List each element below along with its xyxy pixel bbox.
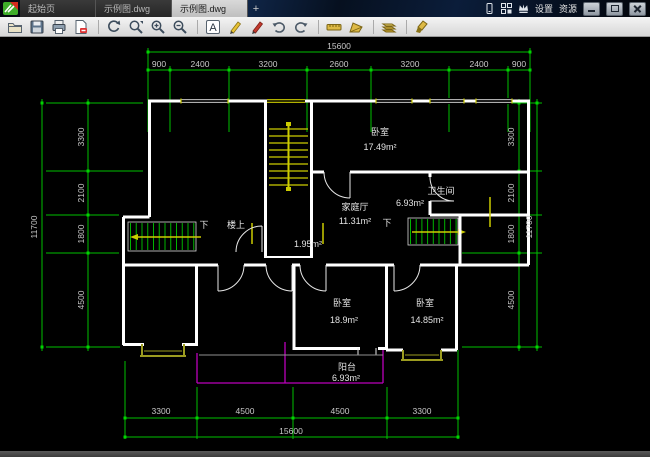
tab-drawing-1[interactable]: 示例图.dwg xyxy=(96,0,172,17)
zoom-extents-icon xyxy=(128,19,144,35)
text-annotate-button[interactable]: A xyxy=(203,18,223,36)
zoom-out-button[interactable] xyxy=(170,18,190,36)
bay-windows xyxy=(140,344,443,360)
text-tool-icon: A xyxy=(205,19,221,35)
bedroom-left-area: 18.9m² xyxy=(330,315,358,325)
tab-label: 起始页 xyxy=(28,2,55,15)
new-tab-button[interactable]: + xyxy=(248,0,264,17)
maximize-button[interactable] xyxy=(606,2,623,16)
zoom-out-icon xyxy=(172,19,188,35)
toolbar-separator xyxy=(98,20,99,34)
room-labels: 卧室 17.49m² 卫生间 6.93m² 家庭厅 11.31m² 1.95m²… xyxy=(199,126,454,383)
resources-menu[interactable]: 资源 xyxy=(559,2,577,15)
dimension-markers xyxy=(41,51,539,439)
svg-text:900: 900 xyxy=(512,59,526,69)
minimize-button[interactable] xyxy=(583,2,600,16)
open-button[interactable] xyxy=(5,18,25,36)
bedroom-right-area: 14.85m² xyxy=(410,315,443,325)
zoom-extents-button[interactable] xyxy=(126,18,146,36)
dim-right-total: 11700 xyxy=(524,215,534,238)
save-floppy-icon xyxy=(29,19,45,35)
svg-text:2100: 2100 xyxy=(76,183,86,202)
svg-text:4500: 4500 xyxy=(76,290,86,309)
tab-drawing-2-active[interactable]: 示例图.dwg xyxy=(172,0,248,17)
svg-text:3300: 3300 xyxy=(76,127,86,146)
redo-button[interactable] xyxy=(291,18,311,36)
ruler-icon xyxy=(326,19,342,35)
cleanup-button[interactable] xyxy=(412,18,432,36)
dim-left-total: 11700 xyxy=(29,215,39,238)
redo-icon xyxy=(293,19,309,35)
zoom-in-icon xyxy=(150,19,166,35)
svg-text:3200: 3200 xyxy=(259,59,278,69)
tab-start-page[interactable]: 起始页 xyxy=(20,0,96,17)
rotate-icon xyxy=(106,19,122,35)
walls xyxy=(123,101,530,350)
stair-down-right-label: 下 xyxy=(382,218,391,228)
brush-icon xyxy=(414,19,430,35)
maximize-icon xyxy=(611,5,619,12)
pencil-annotate-button[interactable] xyxy=(225,18,245,36)
save-button[interactable] xyxy=(27,18,47,36)
tab-label: 示例图.dwg xyxy=(104,2,150,15)
family-hall-area: 11.31m² xyxy=(339,216,371,226)
svg-text:3300: 3300 xyxy=(152,406,171,416)
svg-text:900: 900 xyxy=(152,59,166,69)
cad-viewer-window: 起始页 示例图.dwg 示例图.dwg + 设置 资源 xyxy=(0,0,650,457)
settings-menu[interactable]: 设置 xyxy=(535,2,553,15)
bedroom-top-area: 17.49m² xyxy=(363,142,396,152)
bathroom-area: 6.93m² xyxy=(396,198,424,208)
svg-text:3300: 3300 xyxy=(413,406,432,416)
balcony-name: 阳台 xyxy=(338,361,356,372)
app-logo-icon xyxy=(3,2,18,15)
svg-text:1800: 1800 xyxy=(76,224,86,243)
central-staircase xyxy=(269,122,308,191)
svg-text:2600: 2600 xyxy=(330,59,349,69)
svg-text:2400: 2400 xyxy=(470,59,489,69)
mobile-app-icon[interactable] xyxy=(484,3,495,14)
tab-label: 示例图.dwg xyxy=(180,2,226,15)
svg-text:1800: 1800 xyxy=(506,224,516,243)
svg-text:3200: 3200 xyxy=(401,59,420,69)
bedroom-right-name: 卧室 xyxy=(416,297,434,308)
printer-icon xyxy=(51,19,67,35)
toolbar-separator xyxy=(406,20,407,34)
open-folder-icon xyxy=(7,19,23,35)
layers-button[interactable] xyxy=(379,18,399,36)
pencil-icon xyxy=(227,19,243,35)
qr-grid-icon[interactable] xyxy=(501,3,512,14)
area-icon xyxy=(348,19,364,35)
svg-text:4500: 4500 xyxy=(236,406,255,416)
svg-text:2100: 2100 xyxy=(506,183,516,202)
svg-text:A: A xyxy=(209,22,217,34)
vip-crown-icon[interactable] xyxy=(518,3,529,14)
title-bar: 起始页 示例图.dwg 示例图.dwg + 设置 资源 xyxy=(0,0,650,17)
window-bottom-edge xyxy=(0,451,650,457)
undo-button[interactable] xyxy=(269,18,289,36)
bathroom-name: 卫生间 xyxy=(427,185,454,196)
svg-text:4500: 4500 xyxy=(331,406,350,416)
drawing-canvas[interactable]: 15600 900 2400 3200 2600 3200 2400 900 1… xyxy=(0,37,650,451)
dimension-lines xyxy=(42,48,542,439)
marker-annotate-button[interactable] xyxy=(247,18,267,36)
dim-bottom-total: 15600 xyxy=(279,426,303,436)
undo-icon xyxy=(271,19,287,35)
stair-down-left-label: 下 xyxy=(199,220,208,230)
layers-icon xyxy=(381,19,397,35)
measure-area-button[interactable] xyxy=(346,18,366,36)
rotate-view-button[interactable] xyxy=(104,18,124,36)
toolbar-separator xyxy=(318,20,319,34)
bedroom-left-name: 卧室 xyxy=(333,297,351,308)
titlebar-right-group: 设置 资源 xyxy=(484,0,650,17)
export-pdf-button[interactable] xyxy=(71,18,91,36)
stair-up-label: 楼上 xyxy=(227,219,245,230)
svg-text:3300: 3300 xyxy=(506,127,516,146)
minimize-icon xyxy=(588,10,595,12)
close-button[interactable] xyxy=(629,2,646,16)
main-toolbar: A xyxy=(0,17,650,37)
zoom-in-button[interactable] xyxy=(148,18,168,36)
export-page-icon xyxy=(73,19,89,35)
balcony-area: 6.93m² xyxy=(332,373,360,383)
toolbar-separator xyxy=(373,20,374,34)
svg-text:4500: 4500 xyxy=(506,290,516,309)
floor-plan: 15600 900 2400 3200 2600 3200 2400 900 1… xyxy=(0,37,650,451)
svg-text:2400: 2400 xyxy=(191,59,210,69)
bedroom-top-name: 卧室 xyxy=(371,126,389,137)
print-button[interactable] xyxy=(49,18,69,36)
family-hall-name: 家庭厅 xyxy=(341,201,368,212)
dim-top-total: 15600 xyxy=(327,41,351,51)
toolbar-separator xyxy=(197,20,198,34)
under-stair-area: 1.95m² xyxy=(294,239,322,249)
red-pen-icon xyxy=(249,19,265,35)
measure-length-button[interactable] xyxy=(324,18,344,36)
